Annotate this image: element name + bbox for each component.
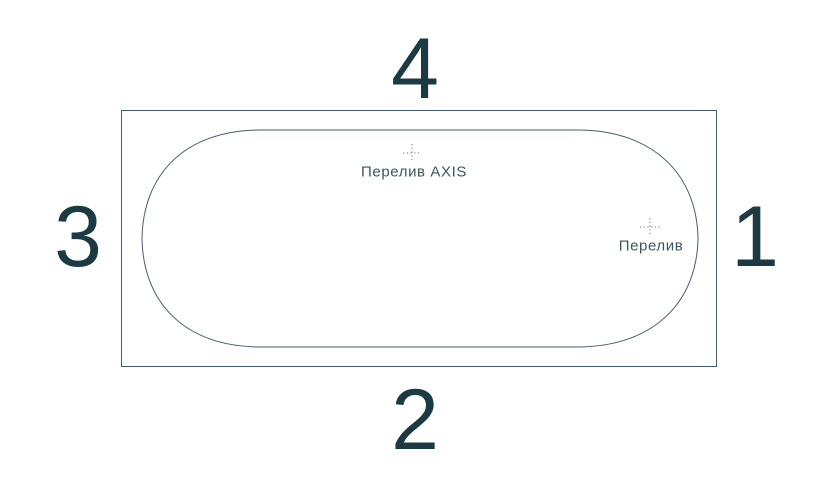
side-number-left: 3 — [54, 194, 102, 280]
side-number-top: 4 — [391, 26, 439, 112]
side-number-right: 1 — [731, 194, 779, 280]
overflow-crosshair-icon — [640, 218, 660, 236]
overflow-label: Перелив — [619, 238, 684, 255]
overflow-axis-label: Перелив AXIS — [361, 164, 467, 181]
side-number-bottom: 2 — [391, 377, 439, 463]
bathtub-diagram: 4 1 2 3 Перелив AXIS Перелив — [0, 0, 828, 480]
overflow-axis-crosshair-icon — [403, 144, 421, 162]
